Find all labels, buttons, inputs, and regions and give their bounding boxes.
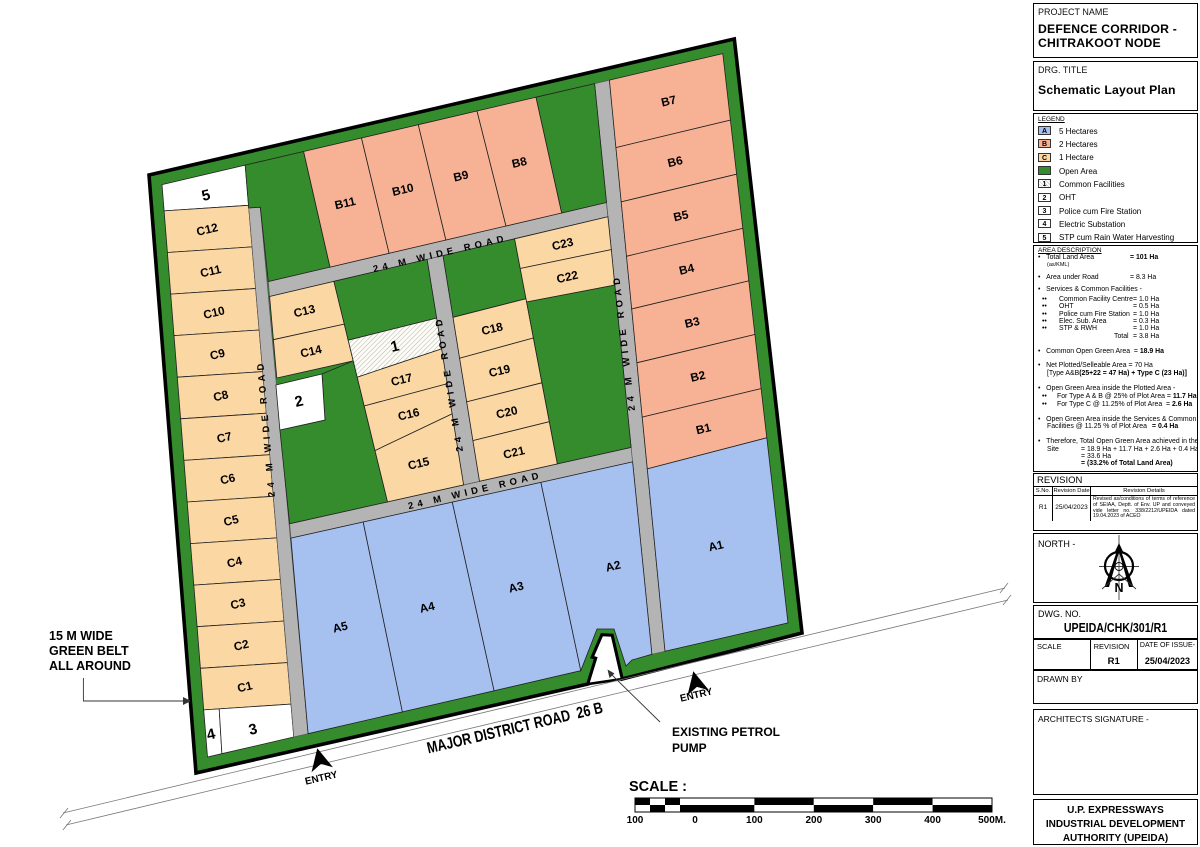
svg-text:EXISTING PETROL: EXISTING PETROL	[672, 725, 780, 739]
svg-text:ALL AROUND: ALL AROUND	[49, 659, 131, 673]
svg-text:PUMP: PUMP	[672, 741, 707, 755]
svg-text:400: 400	[924, 815, 941, 826]
svg-text:100: 100	[627, 815, 644, 826]
svg-text:ENTRY: ENTRY	[679, 686, 714, 704]
svg-text:SCALE :: SCALE :	[629, 779, 687, 795]
svg-text:N: N	[1114, 581, 1123, 595]
svg-text:200: 200	[805, 815, 822, 826]
svg-text:0: 0	[692, 815, 698, 826]
svg-text:ENTRY: ENTRY	[304, 769, 339, 787]
svg-text:15 M WIDE: 15 M WIDE	[49, 629, 113, 643]
svg-text:300: 300	[865, 815, 882, 826]
svg-text:100: 100	[746, 815, 763, 826]
svg-text:500M.: 500M.	[978, 815, 1006, 826]
svg-text:GREEN BELT: GREEN BELT	[49, 644, 129, 658]
